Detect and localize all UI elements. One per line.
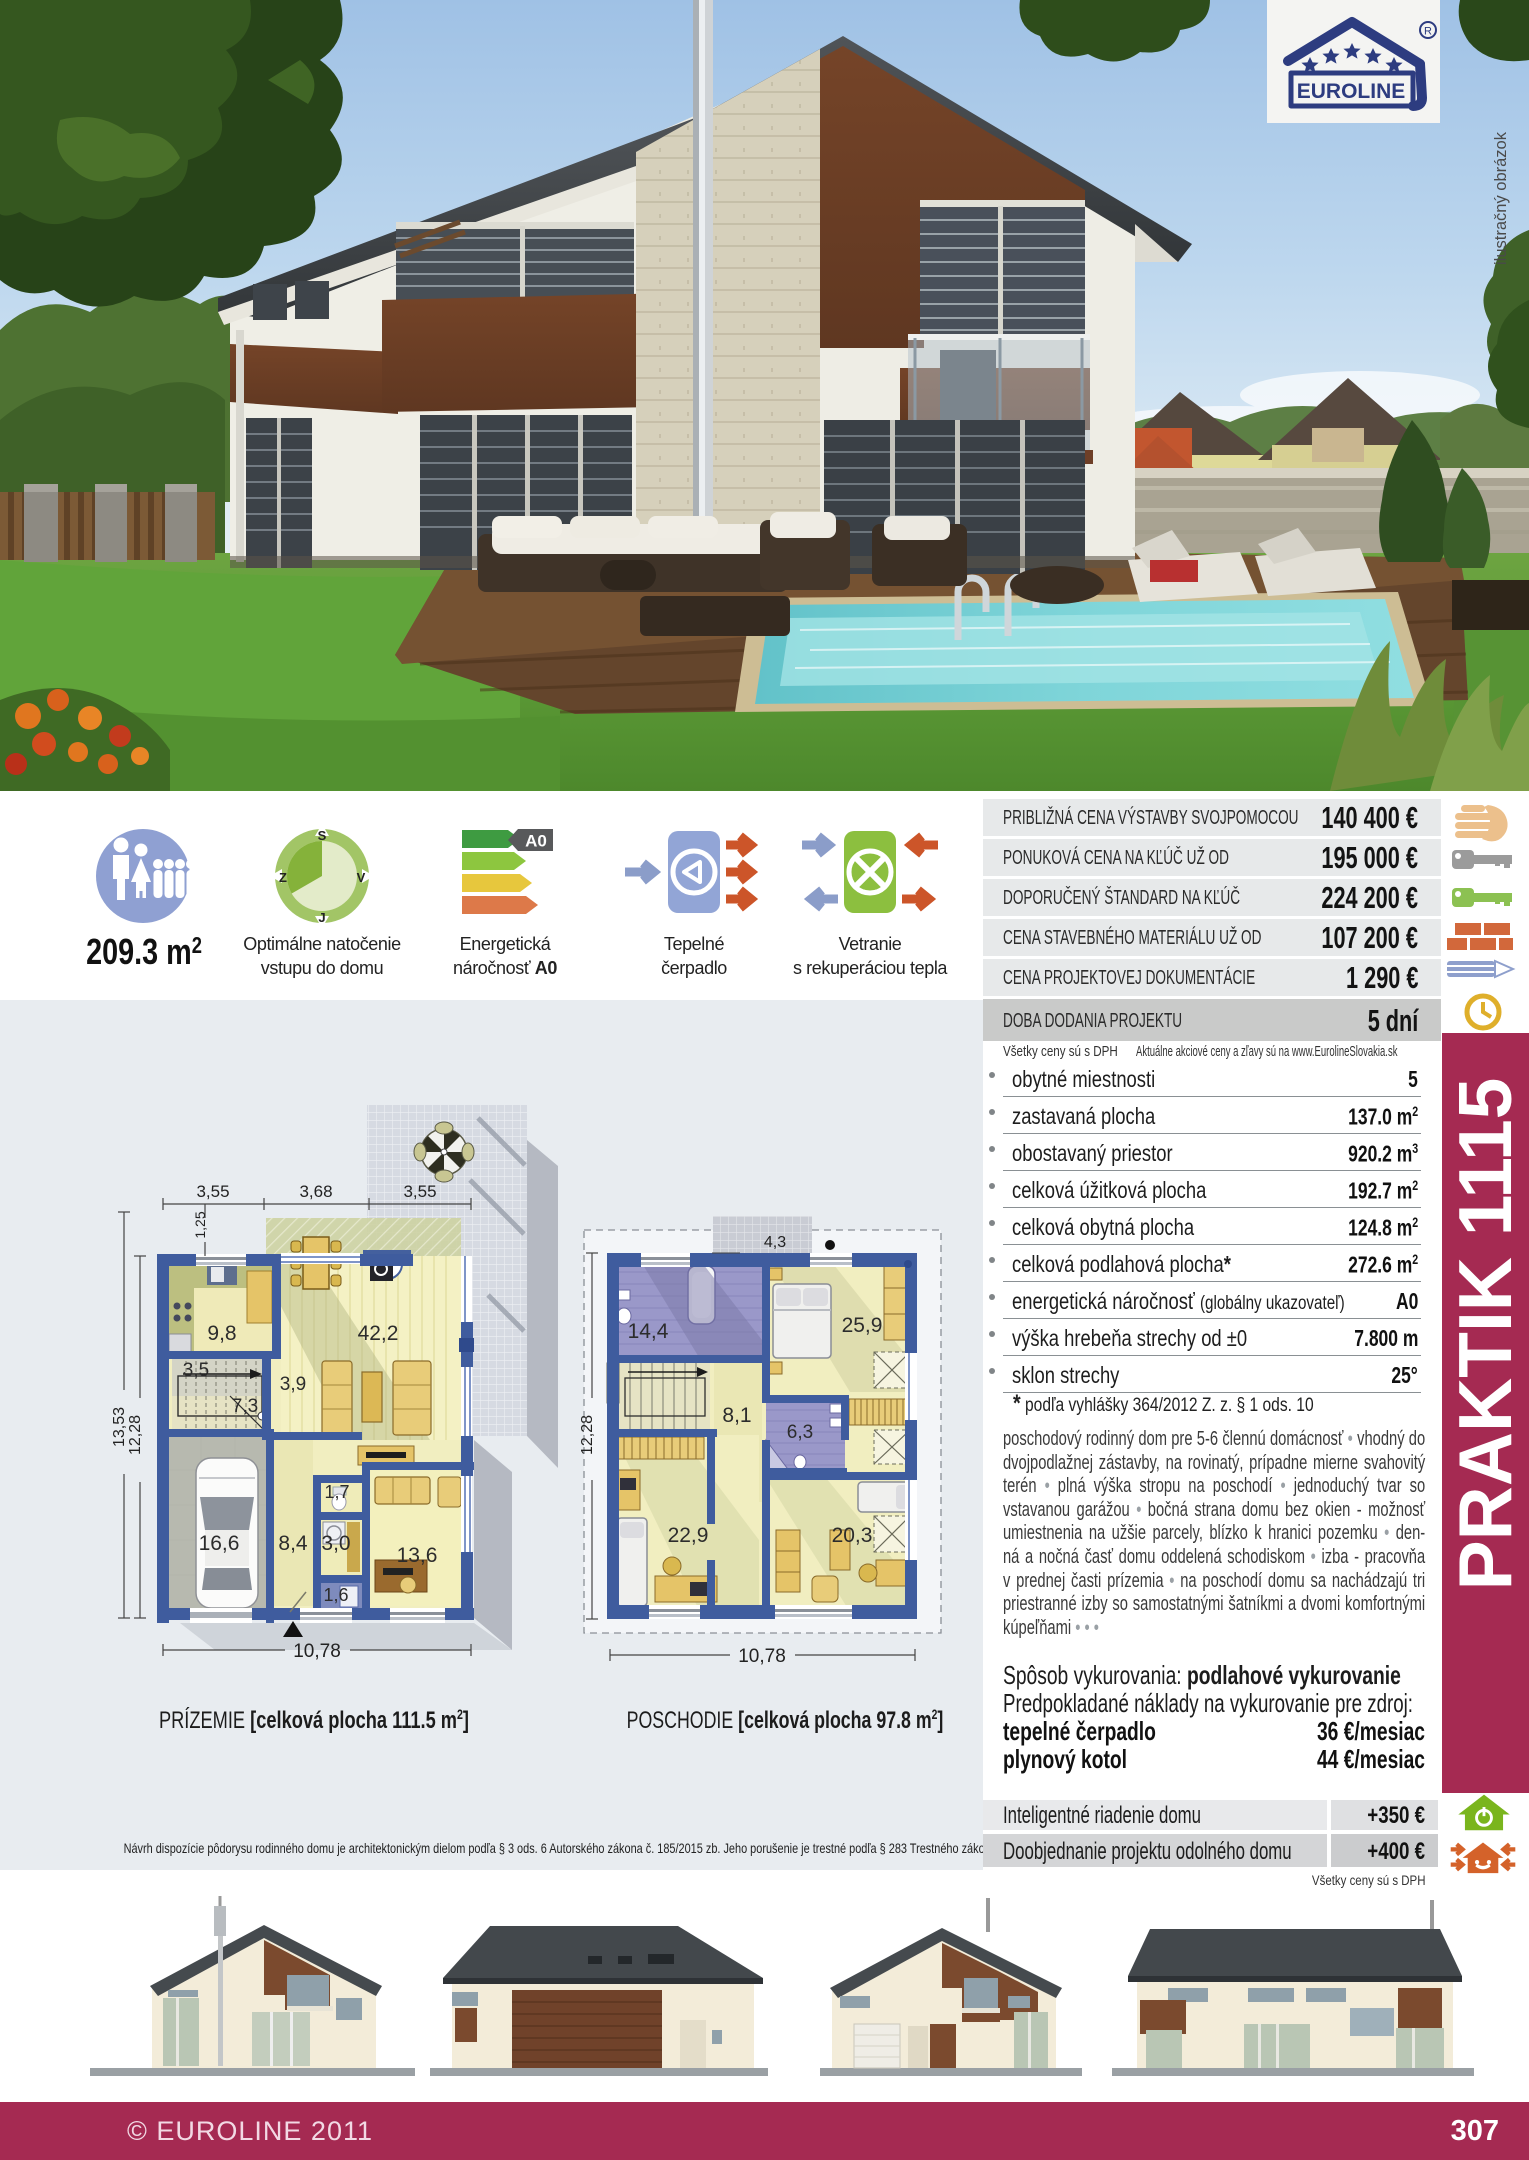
- svg-text:13,53: 13,53: [111, 1407, 128, 1447]
- svg-text:14,4: 14,4: [628, 1320, 669, 1343]
- svg-text:3,9: 3,9: [280, 1374, 306, 1395]
- svg-text:Tepelné: Tepelné: [664, 934, 725, 954]
- svg-text:22,9: 22,9: [668, 1524, 709, 1547]
- svg-text:3,5: 3,5: [183, 1360, 209, 1381]
- svg-text:ilustračný obrázok: ilustračný obrázok: [1492, 131, 1510, 265]
- svg-text:R: R: [1424, 26, 1432, 38]
- svg-text:12,28: 12,28: [579, 1415, 596, 1455]
- svg-text:1,25: 1,25: [192, 1211, 208, 1238]
- svg-text:20,3: 20,3: [832, 1524, 873, 1547]
- svg-text:16,6: 16,6: [199, 1532, 240, 1555]
- svg-text:4,3: 4,3: [764, 1234, 786, 1251]
- svg-text:čerpadlo: čerpadlo: [661, 958, 727, 978]
- svg-text:Vetranie: Vetranie: [839, 934, 902, 954]
- svg-text:3,68: 3,68: [299, 1182, 332, 1201]
- svg-text:25,9: 25,9: [842, 1314, 883, 1337]
- svg-text:42,2: 42,2: [358, 1322, 399, 1345]
- svg-text:10,78: 10,78: [738, 1646, 786, 1667]
- svg-text:S: S: [318, 828, 327, 843]
- svg-text:1,6: 1,6: [323, 1585, 348, 1605]
- svg-text:EUROLINE: EUROLINE: [1297, 80, 1406, 103]
- svg-text:12,28: 12,28: [127, 1415, 144, 1455]
- svg-text:3,55: 3,55: [403, 1182, 436, 1201]
- svg-text:vstupu do domu: vstupu do domu: [261, 958, 383, 978]
- svg-text:A0: A0: [525, 832, 547, 851]
- svg-text:3,55: 3,55: [196, 1182, 229, 1201]
- svg-text:13,6: 13,6: [397, 1544, 438, 1567]
- svg-text:6,3: 6,3: [787, 1422, 813, 1443]
- svg-text:Z: Z: [279, 870, 287, 885]
- svg-text:s rekuperáciou tepla: s rekuperáciou tepla: [793, 958, 948, 978]
- svg-text:10,78: 10,78: [293, 1641, 341, 1662]
- svg-text:Energetická: Energetická: [460, 934, 552, 954]
- svg-text:209.3 m2: 209.3 m2: [86, 931, 202, 972]
- svg-text:8,1: 8,1: [722, 1404, 751, 1427]
- svg-text:V: V: [357, 870, 366, 885]
- svg-text:náročnosť A0: náročnosť A0: [453, 958, 557, 978]
- svg-text:Optimálne natočenie: Optimálne natočenie: [243, 934, 401, 954]
- svg-text:3,0: 3,0: [321, 1532, 350, 1555]
- svg-text:7,3: 7,3: [232, 1396, 258, 1417]
- svg-text:J: J: [318, 910, 325, 925]
- svg-text:9,8: 9,8: [207, 1322, 236, 1345]
- svg-text:1,7: 1,7: [324, 1482, 349, 1502]
- svg-text:8,4: 8,4: [278, 1532, 308, 1555]
